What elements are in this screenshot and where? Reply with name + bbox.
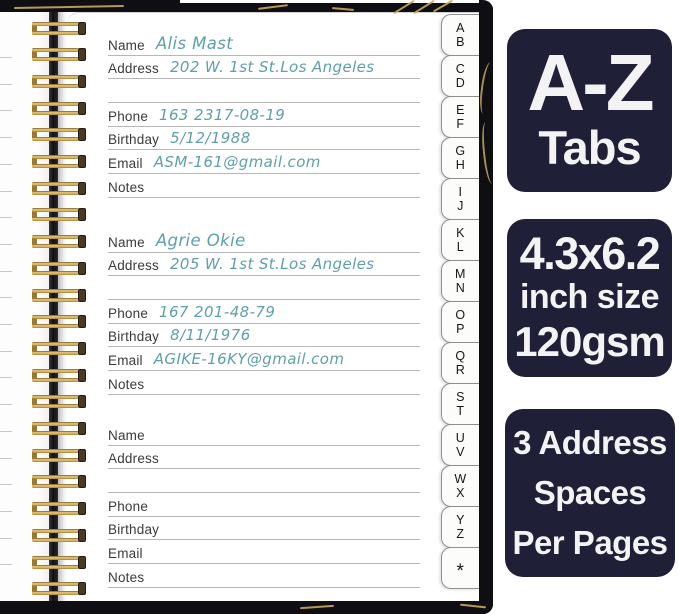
tab-st-label: S T: [456, 390, 465, 419]
field-row-address-line2: [108, 469, 420, 493]
field-row-name: Name: [108, 422, 420, 446]
handwritten-phone: 167 201-48-79: [159, 303, 275, 323]
spiral-wire: [32, 556, 79, 560]
spiral-coil: [32, 315, 86, 328]
spiral-wire: [32, 48, 79, 52]
spiral-coil: [32, 102, 86, 115]
spiral-wire: [32, 351, 79, 355]
field-label-address: Address: [108, 61, 159, 78]
spiral-wire: [32, 538, 79, 542]
badge-size-line3: 120gsm: [514, 316, 664, 367]
badge-address-spaces: 3 Address Spaces Per Pages: [505, 409, 675, 577]
spiral-wire: [32, 431, 79, 435]
spiral-wire: [32, 529, 79, 533]
spiral-wire: [32, 378, 79, 382]
field-label-address: Address: [108, 451, 159, 468]
ruled-line: [0, 564, 12, 565]
field-row-address: Address 202 W. 1st St.Los Angeles: [108, 56, 420, 80]
spiral-wire: [32, 22, 79, 26]
spiral-wire: [32, 208, 79, 212]
spiral-wire: [32, 369, 79, 373]
spiral-wire: [32, 404, 79, 408]
spiral-wire: [32, 449, 79, 453]
spiral-wire: [32, 315, 79, 319]
tab-kl: K L: [441, 219, 479, 261]
ruled-line: [0, 191, 12, 192]
tab-qr: Q R: [441, 342, 479, 384]
spiral-coil: [32, 556, 86, 569]
alphabet-tab-index: A B C D E F G H I J K L M N O P Q R S T …: [441, 14, 479, 589]
ruled-line: [0, 244, 12, 245]
field-row-address-line2: [108, 276, 420, 300]
tab-uv-label: U V: [456, 431, 466, 460]
field-row-birthday: Birthday 5/12/1988: [108, 127, 420, 151]
address-book-product-image: Name Alis Mast Address 202 W. 1st St.Los…: [0, 0, 679, 614]
ruled-line: [0, 458, 12, 459]
field-label-address: Address: [108, 258, 159, 275]
spiral-wire: [32, 289, 79, 293]
spiral-wire: [32, 262, 79, 266]
field-label-email: Email: [108, 353, 143, 370]
spiral-wire: [32, 511, 79, 515]
handwritten-birthday: 5/12/1988: [170, 129, 251, 149]
ruled-line: [0, 484, 12, 485]
tab-ef: E F: [441, 96, 479, 138]
ruled-line: [0, 110, 12, 111]
address-page: Name Alis Mast Address 202 W. 1st St.Los…: [67, 12, 479, 602]
tab-yz: Y Z: [441, 506, 479, 548]
spiral-wire: [32, 182, 79, 186]
spiral-wire: [32, 582, 79, 586]
field-row-birthday: Birthday 8/11/1976: [108, 324, 420, 348]
handwritten-name: Alis Mast: [156, 34, 233, 55]
address-entry-1: Name Alis Mast Address 202 W. 1st St.Los…: [108, 32, 420, 198]
badge-spaces-line2: Spaces: [534, 468, 647, 518]
spiral-wire: [32, 244, 79, 248]
ruled-line: [0, 217, 12, 218]
spiral-wire: [32, 57, 79, 61]
spiral-coil: [32, 422, 86, 435]
spiral-coil: [32, 342, 86, 355]
badge-spaces-line1: 3 Address: [513, 418, 667, 468]
field-label-notes: Notes: [108, 377, 144, 394]
tab-uv: U V: [441, 424, 479, 466]
tab-ef-label: E F: [456, 103, 465, 132]
spiral-wire: [32, 191, 79, 195]
field-row-email: Email AGIKE-16KY@gmail.com: [108, 347, 420, 371]
tab-ab-label: A B: [456, 21, 465, 50]
spiral-wire: [32, 591, 79, 595]
field-label-notes: Notes: [108, 570, 144, 587]
ruled-line: [0, 164, 12, 165]
spiral-coil: [32, 582, 86, 595]
badge-size-gsm: 4.3x6.2 inch size 120gsm: [507, 219, 672, 377]
field-label-email: Email: [108, 546, 143, 563]
spiral-coil: [32, 182, 86, 195]
spiral-wire: [32, 475, 79, 479]
spiral-coil: [32, 128, 86, 141]
field-label-phone: Phone: [108, 499, 148, 516]
handwritten-email: AGIKE-16KY@gmail.com: [154, 350, 345, 370]
field-row-address-line2: [108, 79, 420, 103]
handwritten-address: 202 W. 1st St.Los Angeles: [170, 58, 375, 78]
field-row-birthday: Birthday: [108, 517, 420, 541]
handwritten-address: 205 W. 1st St.Los Angeles: [170, 255, 375, 275]
field-label-name: Name: [108, 38, 145, 55]
spiral-coil: [32, 262, 86, 275]
field-row-name: Name Agrie Okie: [108, 229, 420, 253]
tab-gh: G H: [441, 137, 479, 179]
badge-size-line2: inch size: [520, 278, 659, 316]
field-row-notes: Notes: [108, 371, 420, 395]
tab-wx: W X: [441, 465, 479, 507]
ruled-line: [0, 377, 12, 378]
spiral-coil: [32, 529, 86, 542]
spiral-wire: [32, 31, 79, 35]
spiral-coil: [32, 22, 86, 35]
field-row-phone: Phone 163 2317-08-19: [108, 103, 420, 127]
ruled-line: [0, 351, 12, 352]
spiral-coil: [32, 289, 86, 302]
spiral-coil: [32, 369, 86, 382]
spiral-coil: [32, 48, 86, 61]
spiral-coil: [32, 502, 86, 515]
tab-mn: M N: [441, 260, 479, 302]
spiral-wire: [32, 502, 79, 506]
tab-mn-label: M N: [455, 267, 466, 296]
handwritten-name: Agrie Okie: [156, 231, 246, 252]
tab-qr-label: Q R: [455, 349, 465, 378]
spiral-coil: [32, 155, 86, 168]
tab-op: O P: [441, 301, 479, 343]
address-entry-3: Name Address Phone Birthday Email Note: [108, 422, 420, 588]
spiral-wire: [32, 422, 79, 426]
spiral-wire: [32, 217, 79, 221]
spiral-wire: [32, 164, 79, 168]
tab-kl-label: K L: [456, 226, 465, 255]
spiral-coil: [32, 395, 86, 408]
field-row-name: Name Alis Mast: [108, 32, 420, 56]
ruled-line: [0, 84, 12, 85]
spiral-wire: [32, 565, 79, 569]
tab-star: *: [441, 547, 479, 589]
tab-cd-label: C D: [456, 62, 466, 91]
spiral-wire: [32, 111, 79, 115]
ruled-line: [0, 511, 12, 512]
field-row-notes: Notes: [108, 564, 420, 588]
field-label-birthday: Birthday: [108, 132, 159, 149]
tab-star-label: *: [457, 556, 465, 581]
tab-yz-label: Y Z: [456, 513, 465, 542]
ruled-line: [0, 271, 12, 272]
field-row-address: Address 205 W. 1st St.Los Angeles: [108, 253, 420, 277]
ruled-line: [0, 404, 12, 405]
badge-az-line1: A-Z: [527, 46, 651, 120]
tab-ij: I J: [441, 178, 479, 220]
spiral-coil: [32, 235, 86, 248]
ruled-line: [0, 137, 12, 138]
spiral-coil: [32, 449, 86, 462]
tab-op-label: O P: [455, 308, 465, 337]
handwritten-email: ASM-161@gmail.com: [154, 153, 321, 173]
field-row-email: Email ASM-161@gmail.com: [108, 150, 420, 174]
ruled-line: [0, 538, 12, 539]
spiral-wire: [32, 75, 79, 79]
address-entry-2: Name Agrie Okie Address 205 W. 1st St.Lo…: [108, 229, 420, 395]
spiral-wire: [32, 298, 79, 302]
spiral-wire: [32, 342, 79, 346]
ruled-line: [0, 297, 12, 298]
tab-wx-label: W X: [454, 472, 466, 501]
spiral-wire: [32, 128, 79, 132]
tab-ab: A B: [441, 14, 479, 56]
tab-st: S T: [441, 383, 479, 425]
badge-az-tabs: A-Z Tabs: [507, 29, 672, 192]
field-row-email: Email: [108, 540, 420, 564]
spiral-wire: [32, 84, 79, 88]
spiral-wire: [32, 155, 79, 159]
tab-ij-label: I J: [457, 185, 464, 214]
cover-edge-bottom: [0, 601, 493, 614]
tab-gh-label: G H: [455, 144, 465, 173]
spiral-coil: [32, 75, 86, 88]
spiral-wire: [32, 484, 79, 488]
field-label-birthday: Birthday: [108, 522, 159, 539]
field-row-notes: Notes: [108, 174, 420, 198]
badge-size-line1: 4.3x6.2: [520, 230, 660, 278]
handwritten-phone: 163 2317-08-19: [159, 106, 285, 126]
spiral-wire: [32, 324, 79, 328]
field-label-birthday: Birthday: [108, 329, 159, 346]
spiral-wire: [32, 137, 79, 141]
field-label-name: Name: [108, 428, 145, 445]
badge-az-line2: Tabs: [538, 120, 640, 176]
spiral-wire: [32, 395, 79, 399]
spiral-coil: [32, 208, 86, 221]
badge-spaces-line3: Per Pages: [512, 518, 667, 568]
spiral-wire: [32, 235, 79, 239]
field-label-phone: Phone: [108, 306, 148, 323]
field-row-phone: Phone 167 201-48-79: [108, 300, 420, 324]
ruled-line: [0, 431, 12, 432]
field-label-notes: Notes: [108, 180, 144, 197]
field-label-email: Email: [108, 156, 143, 173]
field-label-phone: Phone: [108, 109, 148, 126]
handwritten-birthday: 8/11/1976: [170, 326, 251, 346]
spiral-wire: [32, 458, 79, 462]
field-row-phone: Phone: [108, 493, 420, 517]
field-label-name: Name: [108, 235, 145, 252]
tab-cd: C D: [441, 55, 479, 97]
ruled-line: [0, 57, 12, 58]
spiral-coil: [32, 475, 86, 488]
ruled-line: [0, 324, 12, 325]
field-row-address: Address: [108, 446, 420, 470]
spiral-wire: [32, 271, 79, 275]
spiral-wire: [32, 102, 79, 106]
